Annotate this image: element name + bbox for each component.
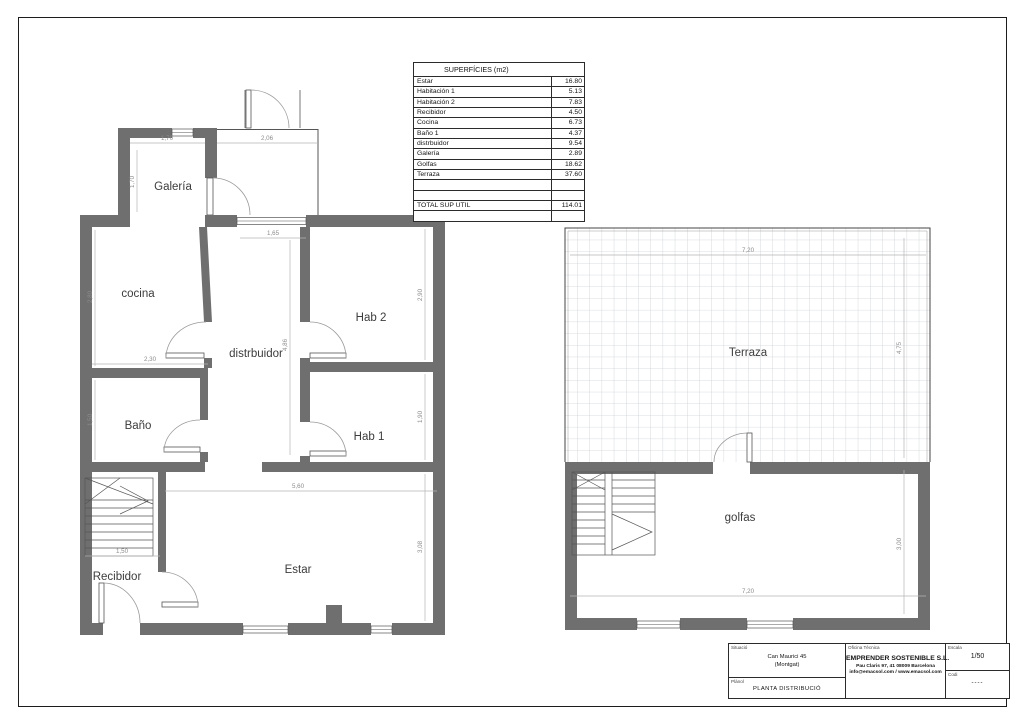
project-address: Can Maurici 45 (729, 653, 845, 661)
table-row: Recibidor4.50 (414, 108, 584, 118)
total-label: TOTAL SUP UTIL (414, 201, 551, 210)
situacio-cell: Situació Can Maurici 45 (Montgat) (729, 644, 845, 678)
escala-label: Escala (948, 645, 962, 650)
room-label-hab2: Hab 2 (356, 312, 387, 324)
room-area: 37.60 (551, 170, 584, 179)
table-row: Galería2.89 (414, 149, 584, 159)
codi-cell: Codi ---- (946, 671, 1009, 698)
room-name: Habitación 2 (414, 98, 551, 107)
porch-interior-door (207, 178, 250, 215)
situacio-label: Situació (731, 645, 747, 650)
golfas-walls (565, 462, 930, 630)
table-row-total: TOTAL SUP UTIL114.01 (414, 201, 584, 211)
office-label: Oficina Tècnica (848, 645, 880, 650)
hab1-door (310, 422, 346, 456)
hab2-door (310, 322, 346, 358)
office-cell: Oficina Tècnica EMPRENDER SOSTENIBLE S.L… (846, 644, 946, 698)
room-area: 4.37 (551, 129, 584, 138)
dim-cocina-height: 2,80 (87, 290, 94, 303)
surfaces-table: SUPERFÍCIES (m2) Estar16.80 Habitación 1… (413, 62, 585, 222)
room-name: Recibidor (414, 108, 551, 117)
table-row-empty (414, 180, 584, 190)
table-row: Habitación 27.83 (414, 98, 584, 108)
dim-bano-height: 1,50 (87, 413, 94, 426)
room-name: Galería (414, 149, 551, 158)
terraza-deck (565, 228, 930, 462)
dim-galeria-width: 1,70 (161, 135, 174, 142)
room-label-distribuidor: distrbuidor (229, 348, 283, 360)
drawing-title: PLANTA DISTRIBUCIÓ (729, 678, 845, 692)
table-row: Cocina6.73 (414, 118, 584, 128)
surfaces-table-title: SUPERFÍCIES (m2) (414, 63, 584, 77)
entry-door (246, 90, 289, 128)
room-area: 5.13 (551, 87, 584, 96)
room-area: 4.50 (551, 108, 584, 117)
table-row: distrbuidor9.54 (414, 139, 584, 149)
room-area: 16.80 (551, 77, 584, 86)
room-area: 9.54 (551, 139, 584, 148)
dim-golfas-height: 3,00 (896, 537, 903, 550)
title-block: Situació Can Maurici 45 (Montgat) Plànol… (728, 643, 1010, 699)
room-label-hab1: Hab 1 (354, 431, 385, 443)
room-name: Golfas (414, 160, 551, 169)
table-row: Terraza37.60 (414, 170, 584, 180)
dim-distribuidor-height: 4,86 (282, 338, 289, 351)
entry-porch (207, 90, 318, 215)
dim-stairs-width: 1,50 (116, 548, 129, 555)
dim-galeria-height: 1,70 (129, 175, 136, 188)
table-row-empty (414, 211, 584, 220)
dim-hab1-height: 1,90 (417, 410, 424, 423)
dim-terraza-height: 4,75 (896, 341, 903, 354)
title-block-left: Situació Can Maurici 45 (Montgat) Plànol… (729, 644, 846, 698)
planol-cell: Plànol PLANTA DISTRIBUCIÓ (729, 678, 845, 698)
dim-porch-width: 2,06 (261, 135, 274, 142)
room-area: 2.89 (551, 149, 584, 158)
room-name: Estar (414, 77, 551, 86)
room-name: distrbuidor (414, 139, 551, 148)
table-row: Golfas18.62 (414, 160, 584, 170)
recibidor-estar-door (162, 572, 198, 607)
ground-staircase (85, 478, 153, 556)
planol-label: Plànol (731, 679, 744, 684)
room-label-cocina: cocina (121, 288, 155, 300)
table-row: Habitación 15.13 (414, 87, 584, 97)
room-label-recibidor: Recibidor (93, 571, 142, 583)
dim-estar-height: 3,08 (417, 540, 424, 553)
bano-door (164, 420, 200, 452)
table-row-empty (414, 191, 584, 201)
cocina-door (166, 322, 206, 358)
upper-staircase (572, 472, 655, 555)
ground-floor-plan: 1,70 2,06 1,70 2,80 1,50 2,30 1,65 4,86 … (80, 90, 445, 635)
dim-door-width: 1,65 (267, 230, 280, 237)
dim-terraza-width: 7,20 (742, 247, 755, 254)
room-label-golfas: golfas (725, 512, 756, 524)
room-label-terraza: Terraza (729, 347, 768, 359)
dim-estar-width: 5,60 (292, 483, 305, 490)
room-area: 18.62 (551, 160, 584, 169)
codi-label: Codi (948, 672, 957, 677)
project-city: (Montgat) (729, 661, 845, 669)
total-value: 114.01 (551, 201, 584, 210)
escala-cell: Escala 1/50 (946, 644, 1009, 671)
ground-dimensions (85, 143, 437, 621)
title-block-right: Escala 1/50 Codi ---- (946, 644, 1009, 698)
office-name: EMPRENDER SOSTENIBLE S.L. (846, 655, 945, 662)
office-address: Pau Claris 97, 41 08009 Barcelona (846, 664, 945, 669)
room-name: Habitación 1 (414, 87, 551, 96)
room-area: 7.83 (551, 98, 584, 107)
interior-walls (80, 227, 445, 572)
room-name: Terraza (414, 170, 551, 179)
front-door (99, 583, 140, 623)
room-name: Cocina (414, 118, 551, 127)
office-web: info@emacsol.com / www.emacsol.com (846, 670, 945, 675)
room-label-estar: Estar (285, 564, 312, 576)
drawing-sheet: { "surfaces_table": { "title": "SUPERFÍC… (0, 0, 1024, 723)
table-row: Estar16.80 (414, 77, 584, 87)
dim-cocina-width: 2,30 (144, 356, 157, 363)
room-area: 6.73 (551, 118, 584, 127)
dim-golfas-width: 7,20 (742, 588, 755, 595)
dim-hab2-height: 2,90 (417, 288, 424, 301)
room-label-bano: Baño (125, 420, 152, 432)
upper-floor-plan: 7,20 4,75 3,00 7,20 Terraza golfas (565, 228, 930, 630)
table-row: Baño 14.37 (414, 129, 584, 139)
room-label-galeria: Galería (154, 181, 192, 193)
room-name: Baño 1 (414, 129, 551, 138)
